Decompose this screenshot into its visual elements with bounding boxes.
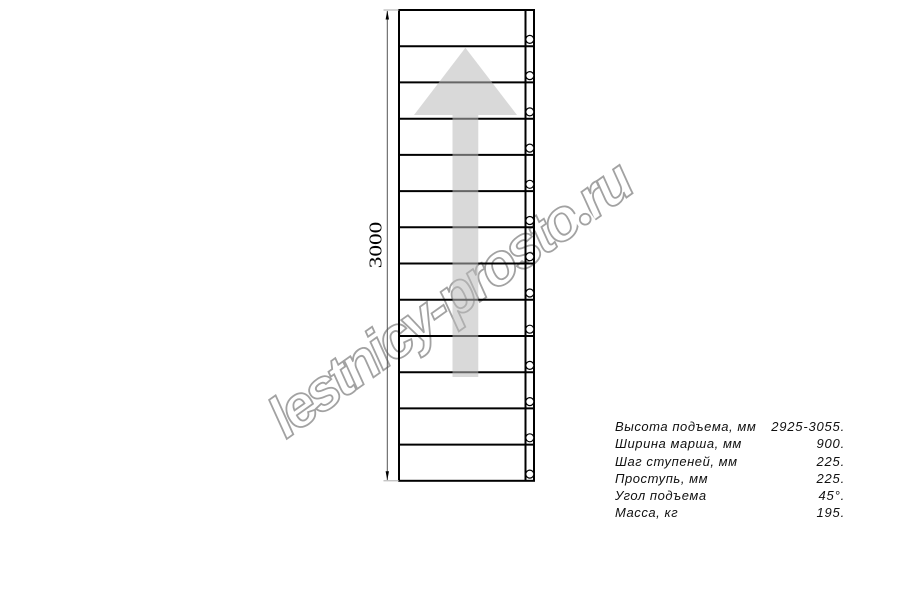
svg-text:3000: 3000 [366,222,386,269]
svg-text:lestnicy-prosto.ru: lestnicy-prosto.ru [256,147,645,450]
